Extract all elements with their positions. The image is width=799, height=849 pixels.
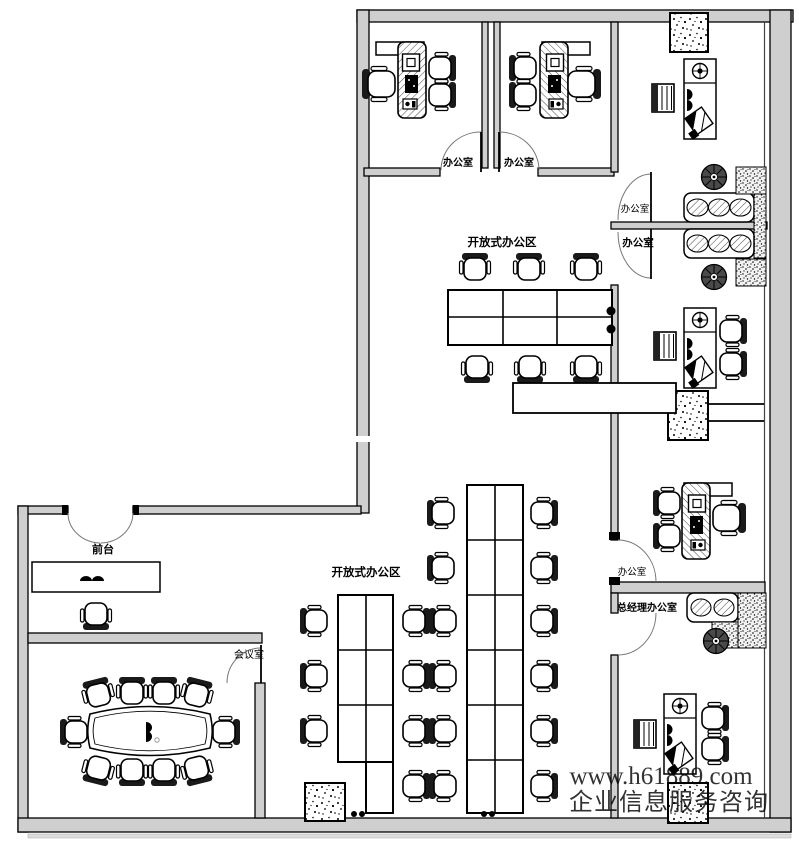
- meeting-chair: [149, 759, 180, 786]
- plant: [704, 629, 729, 654]
- wall-top: [357, 10, 793, 22]
- chair: [300, 606, 327, 637]
- door-jamb: [609, 532, 620, 540]
- chair: [571, 356, 602, 383]
- wall-gm-top: [611, 582, 765, 593]
- wall-entry-right: [133, 506, 361, 514]
- room-label-office-right-top: 办公室: [621, 203, 650, 215]
- sofa: [687, 593, 738, 622]
- plant: [702, 265, 727, 290]
- guest-chair: [429, 53, 456, 84]
- guest-chair: [429, 80, 456, 111]
- guest-chair: [653, 521, 680, 552]
- door-main-entrance: [62, 505, 139, 543]
- wall-meeting-right: [255, 683, 265, 818]
- chair: [403, 771, 430, 802]
- cabinet-row: [513, 383, 676, 413]
- chair: [403, 606, 430, 637]
- guest-chair: [653, 488, 680, 519]
- chair: [403, 661, 430, 692]
- floor-plan-page: 办公室 办公室 办公室 办公室 办公室: [0, 0, 799, 849]
- chair: [531, 606, 558, 637]
- chair: [515, 356, 546, 383]
- meeting-chair: [60, 717, 87, 748]
- room-office-top-1: 办公室: [362, 42, 473, 169]
- wall-joint-gap: [355, 436, 371, 442]
- chair: [531, 498, 558, 529]
- desk: [680, 308, 716, 389]
- chair: [531, 661, 558, 692]
- executive-chair: [568, 67, 601, 102]
- meeting-chair: [117, 759, 148, 786]
- lounge-chair: [652, 84, 674, 112]
- sofa: [684, 193, 754, 222]
- desk: [680, 59, 716, 140]
- watermark-caption: 企业信息服务咨询: [569, 789, 769, 816]
- chair: [300, 661, 327, 692]
- sofa: [684, 229, 754, 258]
- room-label-office-2: 办公室: [504, 156, 534, 169]
- column: [670, 13, 708, 52]
- room-label-office-right-mid: 办公室: [622, 236, 654, 249]
- desk-bank-extension: [366, 762, 393, 813]
- room-label-office-right-lower: 办公室: [618, 566, 647, 578]
- chair: [571, 253, 602, 280]
- chair: [531, 716, 558, 747]
- wall-offices-bottom-left: [364, 168, 440, 176]
- guest-chair: [702, 703, 729, 734]
- guest-chair: [509, 53, 536, 84]
- passage-screen: [708, 404, 764, 421]
- chair: [403, 716, 430, 747]
- meeting-chair: [213, 717, 240, 748]
- wall-bottom-shadow: [28, 834, 791, 838]
- chair: [531, 553, 558, 584]
- room-label-gm-office: 总经理办公室: [617, 601, 677, 614]
- chair: [429, 771, 456, 802]
- wall-fixture: [607, 325, 616, 334]
- meeting-chair: [117, 677, 148, 704]
- chair: [300, 716, 327, 747]
- chair: [460, 253, 491, 280]
- meeting-room: 会议室: [60, 648, 264, 787]
- executive-chair: [362, 67, 395, 102]
- area-label-open-upper: 开放式办公区: [468, 235, 537, 249]
- room-office-right-mid: 办公室: [622, 229, 766, 389]
- chair: [427, 498, 454, 529]
- guest-chair: [702, 734, 729, 765]
- area-label-open-lower: 开放式办公区: [332, 565, 401, 579]
- floor-plan: 办公室 办公室 办公室 办公室 办公室: [0, 0, 799, 849]
- planter: [738, 593, 766, 648]
- reception-area: 前台: [32, 542, 160, 630]
- wall-lower-left: [18, 506, 28, 832]
- wall-sofa-divider: [611, 222, 767, 229]
- guest-chair: [720, 316, 747, 347]
- room-label-meeting: 会议室: [234, 648, 264, 661]
- column: [305, 783, 345, 821]
- chair: [427, 553, 454, 584]
- room-office-top-2: 办公室: [504, 42, 601, 169]
- watermark: www.h61889.com 企业信息服务咨询: [569, 763, 769, 816]
- chair: [429, 661, 456, 692]
- lounge-chair: [634, 720, 656, 748]
- door-gm-office: [618, 613, 656, 655]
- plant: [702, 165, 727, 190]
- watermark-url: www.h61889.com: [569, 763, 753, 790]
- chair: [531, 771, 558, 802]
- executive-chair: [713, 501, 746, 536]
- chair: [429, 606, 456, 637]
- reception-chair: [81, 603, 112, 630]
- wall-right-corridor-a: [611, 22, 618, 172]
- wall-meeting-top: [28, 633, 262, 643]
- open-office-lower: 开放式办公区: [300, 485, 558, 817]
- room-label-office-1: 办公室: [443, 156, 473, 169]
- guest-chair: [509, 80, 536, 111]
- chair: [429, 716, 456, 747]
- wall-office-divider-1: [482, 22, 488, 168]
- chair: [514, 253, 545, 280]
- door-jamb: [609, 577, 620, 585]
- area-label-reception: 前台: [92, 542, 114, 556]
- lounge-chair: [654, 332, 676, 360]
- chair: [462, 356, 493, 383]
- wall-fixture: [607, 307, 616, 316]
- room-gm-office: 总经理办公室: [617, 593, 766, 775]
- guest-chair: [720, 349, 747, 380]
- planter: [736, 167, 766, 194]
- open-office-upper: 开放式办公区: [448, 235, 676, 413]
- planter: [754, 194, 766, 258]
- wall-right: [770, 10, 791, 832]
- meeting-chair: [179, 754, 216, 788]
- planter: [736, 259, 766, 286]
- meeting-chair: [179, 676, 216, 710]
- meeting-chair: [80, 676, 117, 710]
- meeting-chair: [149, 677, 180, 704]
- wall-offices-bottom-right: [538, 168, 614, 176]
- meeting-chair: [80, 754, 117, 788]
- room-office-right-lower: 办公室: [618, 483, 746, 578]
